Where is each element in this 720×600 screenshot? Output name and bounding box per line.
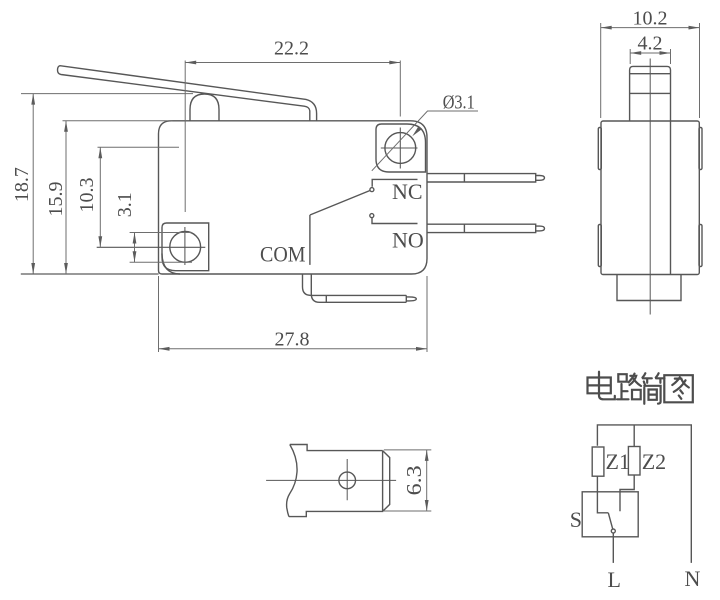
svg-text:15.9: 15.9 [45, 182, 67, 217]
svg-text:NO: NO [392, 228, 424, 253]
svg-text:COM: COM [260, 242, 306, 267]
svg-text:3.1: 3.1 [114, 192, 136, 217]
svg-text:10.3: 10.3 [76, 178, 98, 213]
svg-text:L: L [608, 567, 621, 592]
svg-text:Z2: Z2 [642, 449, 666, 474]
svg-text:Ø3.1: Ø3.1 [443, 92, 475, 114]
svg-text:22.2: 22.2 [274, 38, 309, 60]
svg-text:Z1: Z1 [606, 449, 630, 474]
svg-text:NC: NC [392, 179, 423, 204]
svg-text:27.8: 27.8 [275, 329, 310, 351]
svg-text:18.7: 18.7 [11, 167, 33, 202]
svg-text:4.2: 4.2 [638, 33, 663, 55]
svg-text:6.3: 6.3 [402, 465, 426, 495]
svg-text:S: S [570, 507, 582, 532]
svg-text:N: N [685, 566, 701, 591]
svg-text:10.2: 10.2 [633, 8, 668, 30]
